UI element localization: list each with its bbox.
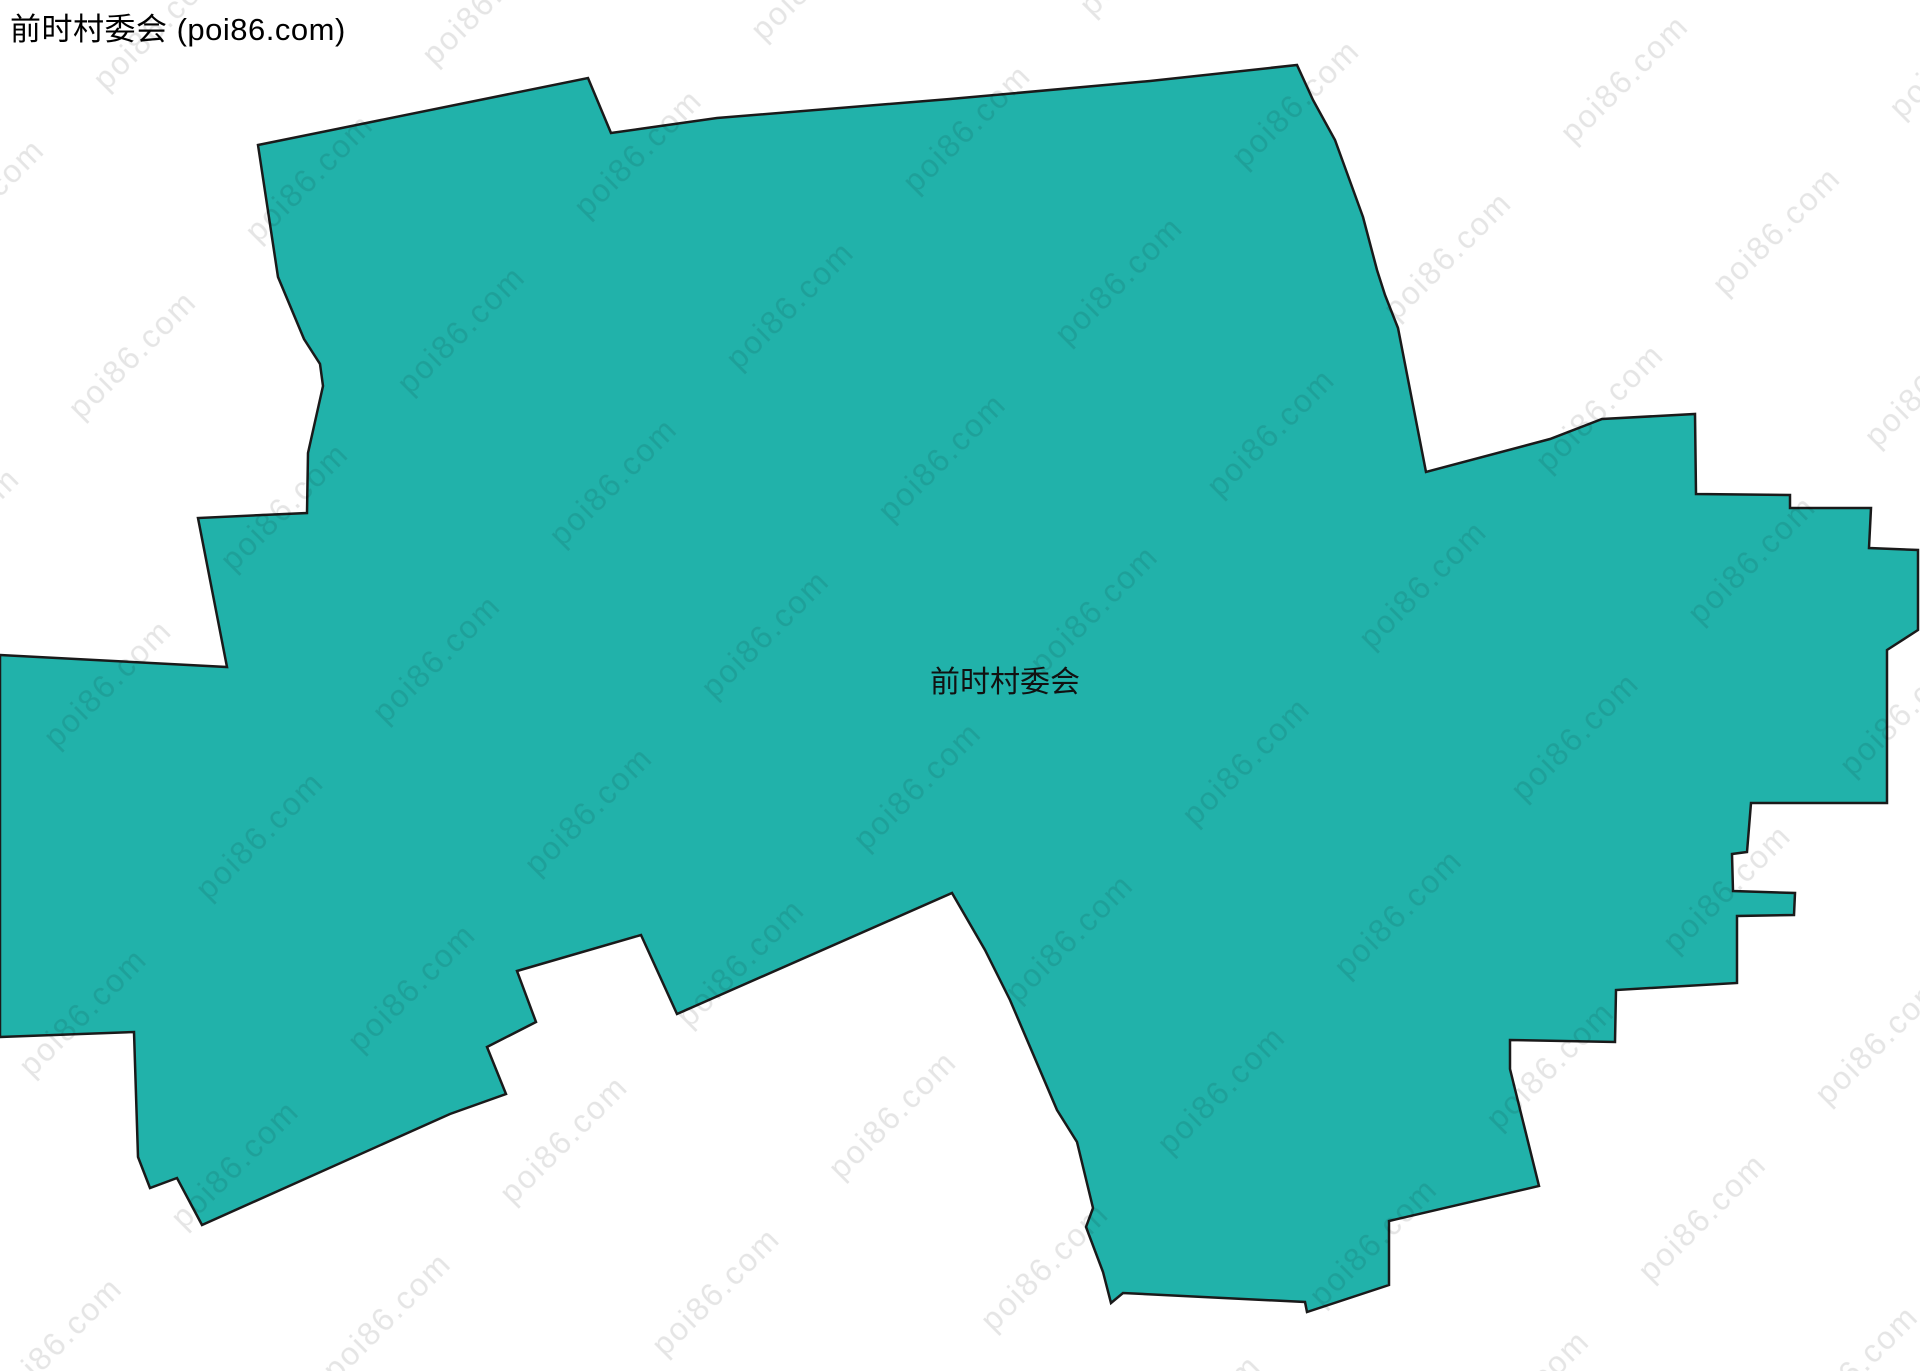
map-stage: poi86.com前时村委会 前时村委会 (poi86.com) xyxy=(0,0,1920,1371)
region-label: 前时村委会 xyxy=(930,666,1080,699)
map-svg: poi86.com前时村委会 xyxy=(0,0,1920,1371)
page-title: 前时村委会 (poi86.com) xyxy=(10,4,346,49)
